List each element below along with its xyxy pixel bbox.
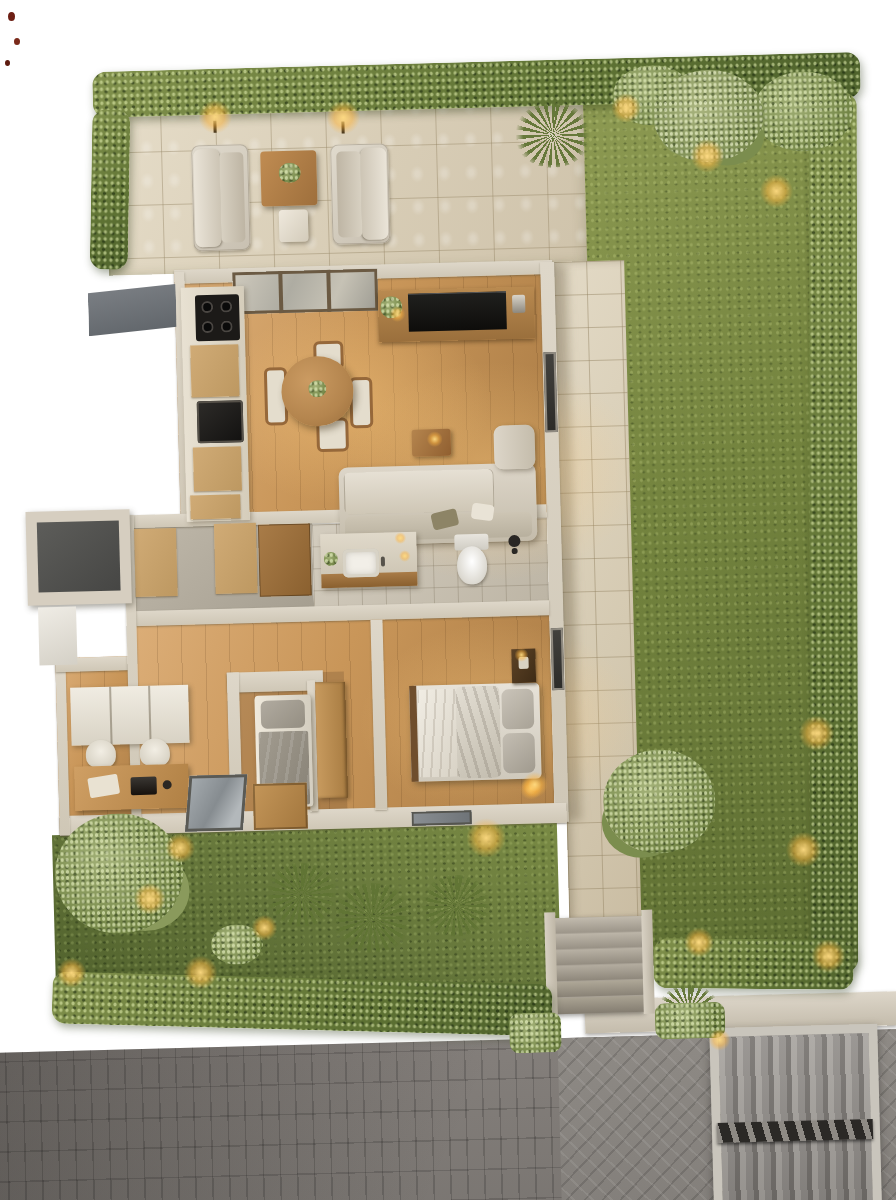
- patio-sofa-right-backrest: [360, 147, 388, 240]
- vanity-plant: [324, 552, 338, 566]
- burner: [221, 320, 233, 332]
- debris-speck: [14, 38, 20, 45]
- step-tread: [556, 996, 644, 1014]
- patio-table-plant: [278, 163, 301, 184]
- hall-closet-wood: [258, 523, 312, 596]
- office-wardrobe: [70, 685, 189, 746]
- console-speaker: [512, 295, 525, 313]
- planter-by-steps-left: [509, 1012, 562, 1053]
- debris-speck: [5, 60, 10, 66]
- living-side-table: [411, 429, 451, 457]
- window-mullion: [326, 270, 331, 312]
- hall-cabinet-right: [214, 523, 258, 594]
- office-chair: [85, 740, 116, 769]
- debris-speck: [8, 12, 15, 21]
- entry-step-block: [38, 607, 78, 666]
- render-canvas: [0, 0, 896, 1200]
- patio-side-stool: [279, 209, 309, 242]
- toilet-bowl: [457, 546, 488, 585]
- entry-porch: [25, 509, 131, 606]
- console-plant: [380, 296, 403, 319]
- carport-roof-slab: [88, 284, 177, 336]
- burner: [202, 321, 214, 333]
- hedge-right: [809, 93, 859, 973]
- step-tread: [556, 980, 644, 997]
- window-mullion: [278, 271, 283, 313]
- television: [408, 291, 507, 332]
- bathroom-sink: [343, 549, 380, 578]
- patio-sofa-left: [191, 144, 251, 251]
- back-door-wood: [253, 783, 308, 830]
- garden-steps: [554, 916, 644, 1014]
- step-tread: [555, 932, 643, 949]
- master-back-window: [411, 810, 471, 826]
- desk-laptop: [130, 777, 156, 796]
- bathroom-vanity: [320, 532, 417, 588]
- toilet: [452, 534, 491, 585]
- kitchen-cabinet: [193, 446, 242, 491]
- entry-porch-floor: [37, 520, 121, 592]
- burner: [220, 300, 232, 312]
- wardrobe-door-seam: [148, 686, 152, 744]
- desk-papers: [87, 774, 120, 799]
- master-bed-pillow: [502, 733, 535, 774]
- step-tread: [556, 964, 644, 981]
- kitchen-counter: [181, 286, 250, 522]
- bedroom-window: [551, 628, 565, 690]
- single-bedroom-wardrobe: [315, 682, 348, 799]
- patio-sofa-left-seat: [219, 152, 245, 243]
- patio-coffee-table: [260, 150, 317, 206]
- pergola-beam: [717, 1119, 873, 1143]
- kitchen-cabinet: [190, 344, 239, 397]
- burner: [201, 301, 213, 313]
- wardrobe-door-seam: [109, 687, 113, 745]
- living-window-panel: [232, 269, 378, 315]
- patio-sofa-right: [330, 143, 391, 244]
- office-desk: [74, 764, 189, 811]
- nightstand-lamp: [518, 657, 528, 669]
- office-chair: [139, 738, 170, 767]
- hedge-left: [90, 109, 131, 270]
- planter-by-steps-right: [655, 1002, 726, 1040]
- dining-centerpiece-plant: [308, 380, 326, 397]
- hedge-light-stem: [341, 121, 344, 133]
- nightstand: [511, 649, 536, 684]
- desk-cup: [163, 780, 172, 789]
- step-tread: [555, 948, 643, 965]
- single-bed-pillow: [261, 700, 306, 729]
- master-bed-sheet: [417, 689, 459, 778]
- master-bed: [409, 683, 541, 782]
- hedge-light-stem: [213, 121, 216, 133]
- tv-console: [378, 287, 535, 343]
- kitchen-sink: [197, 400, 244, 443]
- hedge-bottom-right: [653, 938, 853, 990]
- cooktop: [195, 294, 240, 341]
- living-sliding-door: [543, 352, 557, 432]
- office-tall-window: [185, 774, 247, 832]
- patio-sofa-right-seat: [336, 151, 362, 238]
- hall-cabinet-left: [134, 528, 178, 597]
- sink-faucet: [381, 557, 385, 567]
- pergola-structure: [709, 1024, 884, 1200]
- master-bed-duvet: [455, 686, 501, 779]
- patio-sofa-left-backrest: [193, 149, 222, 248]
- master-bed-pillow: [501, 689, 534, 730]
- living-sofa-arm: [493, 425, 535, 470]
- sofa-pillow-light: [471, 503, 495, 522]
- step-tread: [554, 916, 642, 933]
- pantry-cabinet: [190, 494, 241, 519]
